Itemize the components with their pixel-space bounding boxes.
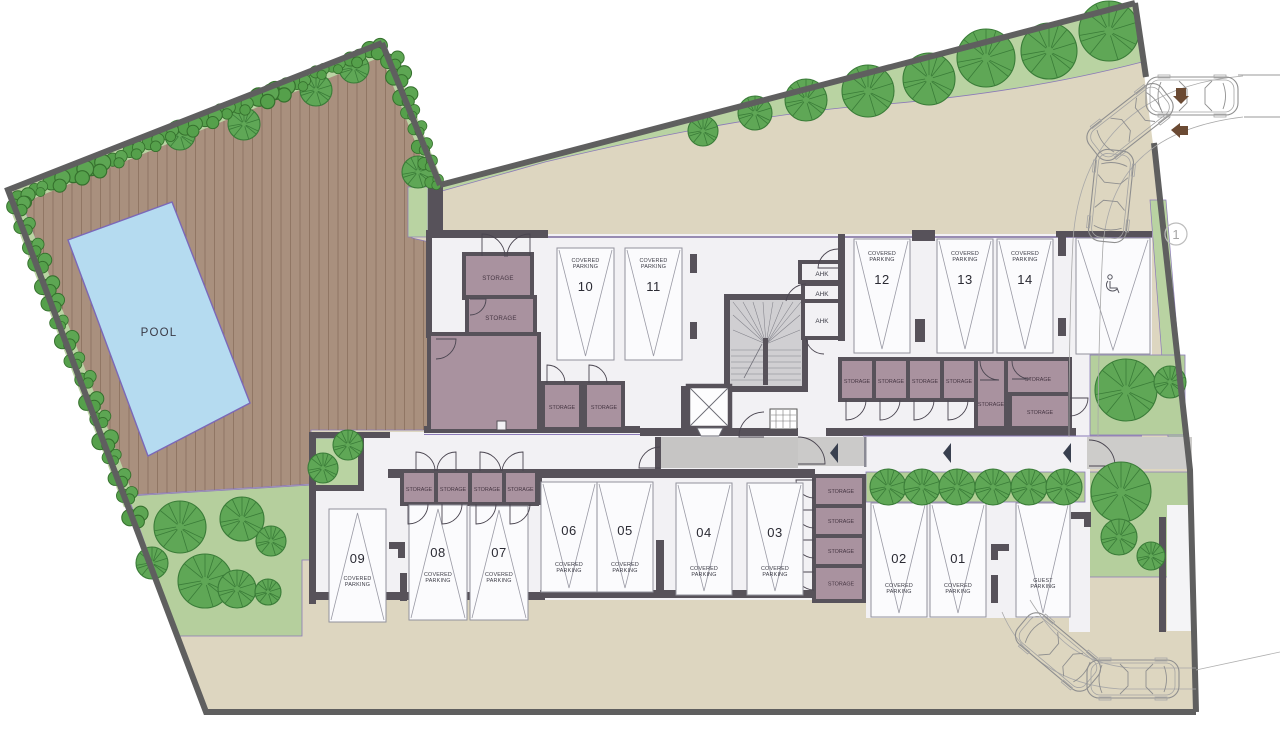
svg-text:14: 14 bbox=[1017, 272, 1032, 287]
svg-text:PARKING: PARKING bbox=[556, 568, 581, 574]
svg-text:STORAGE: STORAGE bbox=[828, 489, 855, 495]
svg-text:STORAGE: STORAGE bbox=[978, 402, 1005, 408]
svg-text:06: 06 bbox=[561, 523, 576, 538]
svg-text:12: 12 bbox=[874, 272, 889, 287]
svg-text:STORAGE: STORAGE bbox=[828, 519, 855, 525]
svg-text:02: 02 bbox=[891, 551, 906, 566]
svg-text:11: 11 bbox=[646, 279, 661, 294]
svg-text:STORAGE: STORAGE bbox=[878, 379, 905, 385]
svg-text:STORAGE: STORAGE bbox=[1027, 410, 1054, 416]
svg-text:PARKING: PARKING bbox=[612, 568, 637, 574]
svg-text:08: 08 bbox=[430, 545, 445, 560]
svg-text:PARKING: PARKING bbox=[952, 257, 977, 263]
svg-text:PARKING: PARKING bbox=[886, 589, 911, 595]
svg-text:PARKING: PARKING bbox=[641, 264, 666, 270]
svg-text:STORAGE: STORAGE bbox=[828, 582, 855, 588]
svg-text:STORAGE: STORAGE bbox=[1025, 377, 1052, 383]
svg-text:PARKING: PARKING bbox=[945, 589, 970, 595]
svg-text:05: 05 bbox=[617, 523, 632, 538]
svg-text:AHK: AHK bbox=[815, 271, 829, 278]
svg-text:PARKING: PARKING bbox=[691, 572, 716, 578]
svg-text:PARKING: PARKING bbox=[425, 578, 450, 584]
svg-text:STORAGE: STORAGE bbox=[912, 379, 939, 385]
svg-text:PARKING: PARKING bbox=[486, 578, 511, 584]
svg-text:POOL: POOL bbox=[141, 327, 178, 339]
svg-text:AHK: AHK bbox=[815, 291, 829, 298]
svg-text:PARKING: PARKING bbox=[869, 257, 894, 263]
svg-text:07: 07 bbox=[491, 545, 506, 560]
svg-text:03: 03 bbox=[767, 525, 782, 540]
svg-text:09: 09 bbox=[350, 551, 365, 566]
svg-text:STORAGE: STORAGE bbox=[946, 379, 973, 385]
svg-text:PARKING: PARKING bbox=[1012, 257, 1037, 263]
svg-text:STORAGE: STORAGE bbox=[844, 379, 871, 385]
svg-text:AHK: AHK bbox=[815, 318, 829, 325]
svg-text:PARKING: PARKING bbox=[1030, 584, 1055, 590]
svg-text:STORAGE: STORAGE bbox=[507, 487, 534, 493]
svg-text:STORAGE: STORAGE bbox=[485, 315, 517, 322]
svg-text:STORAGE: STORAGE bbox=[482, 275, 514, 282]
svg-text:1: 1 bbox=[1172, 227, 1179, 242]
svg-text:04: 04 bbox=[696, 525, 711, 540]
svg-text:STORAGE: STORAGE bbox=[440, 487, 467, 493]
svg-text:STORAGE: STORAGE bbox=[591, 405, 618, 411]
svg-text:STORAGE: STORAGE bbox=[549, 405, 576, 411]
svg-text:10: 10 bbox=[578, 279, 593, 294]
svg-text:STORAGE: STORAGE bbox=[474, 487, 501, 493]
svg-text:PARKING: PARKING bbox=[345, 582, 370, 588]
svg-text:01: 01 bbox=[950, 551, 965, 566]
svg-text:PARKING: PARKING bbox=[573, 264, 598, 270]
svg-text:PARKING: PARKING bbox=[762, 572, 787, 578]
svg-text:13: 13 bbox=[957, 272, 972, 287]
svg-text:STORAGE: STORAGE bbox=[406, 487, 433, 493]
svg-text:STORAGE: STORAGE bbox=[828, 549, 855, 555]
